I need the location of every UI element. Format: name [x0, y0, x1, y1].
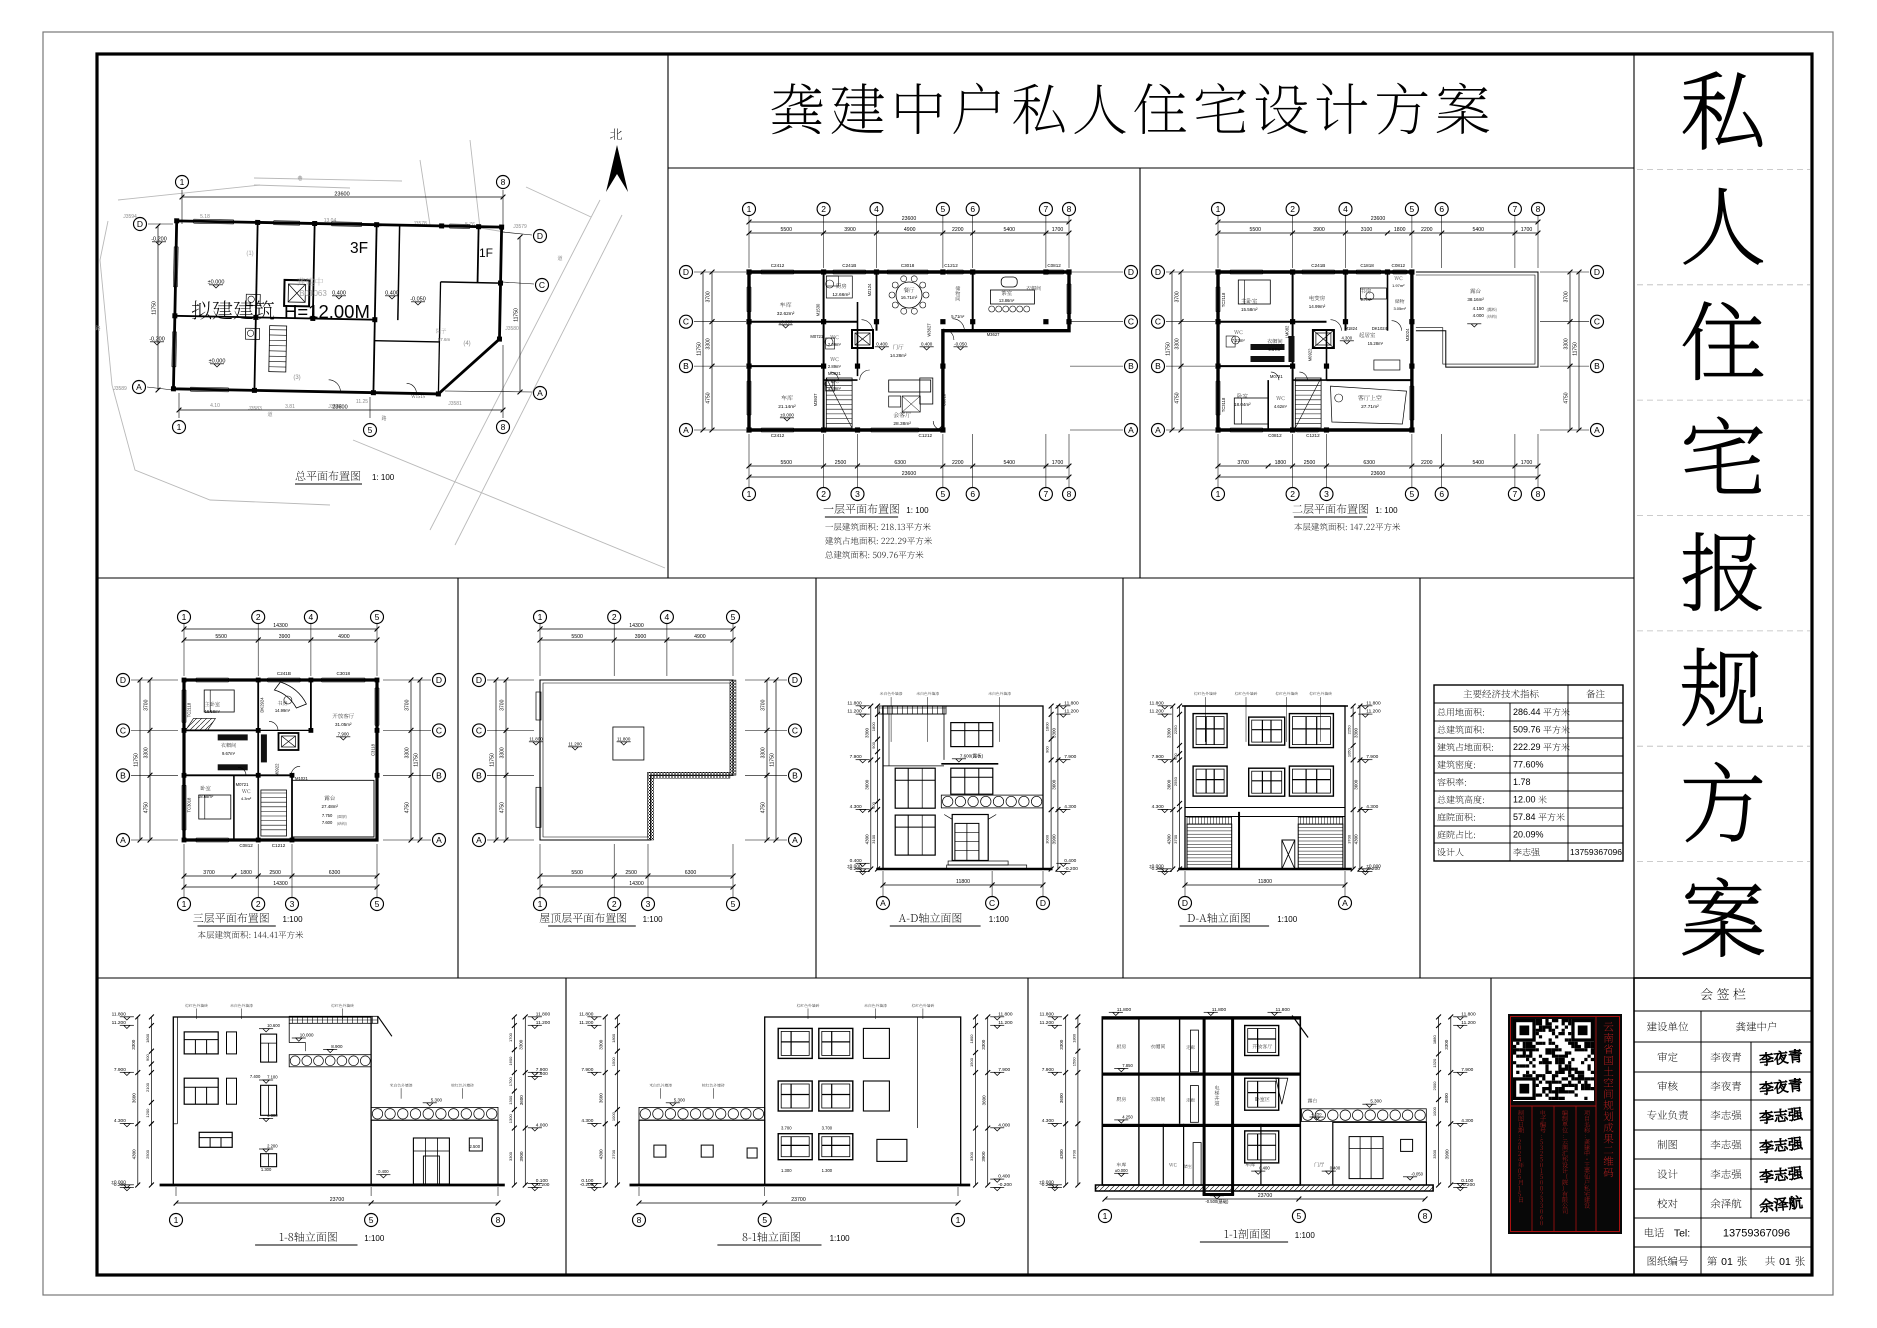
svg-text:2: 2	[821, 204, 826, 214]
svg-text:3300: 3300	[1166, 727, 1171, 738]
svg-text:4.150: 4.150	[1473, 306, 1485, 311]
svg-text:11.800: 11.800	[579, 1011, 594, 1017]
svg-text:1600: 1600	[508, 1056, 513, 1066]
svg-text:3700: 3700	[1237, 460, 1249, 466]
svg-text:1800: 1800	[1275, 460, 1287, 466]
svg-text:11.200: 11.200	[1064, 709, 1079, 715]
svg-text:5500: 5500	[571, 870, 583, 876]
svg-text:3300: 3300	[1175, 338, 1181, 349]
svg-text:C: C	[539, 280, 545, 290]
svg-text:3.05m²: 3.05m²	[1393, 306, 1406, 311]
svg-text:7.900: 7.900	[1152, 754, 1164, 760]
svg-text:7.900: 7.900	[1042, 1067, 1054, 1073]
svg-text:A: A	[1594, 425, 1600, 435]
svg-text:-0.200: -0.200	[149, 336, 165, 342]
svg-text:4300: 4300	[864, 834, 869, 845]
svg-text:6300: 6300	[329, 870, 341, 876]
svg-text:4900: 4900	[694, 634, 706, 640]
svg-text:1800: 1800	[969, 1034, 974, 1044]
svg-text:23700: 23700	[791, 1197, 806, 1203]
svg-text:10.600: 10.600	[267, 1023, 280, 1028]
svg-text:1700: 1700	[1521, 460, 1533, 466]
svg-text:6300: 6300	[1363, 460, 1375, 466]
svg-text:D: D	[476, 675, 482, 685]
svg-text:15.28m²: 15.28m²	[1368, 341, 1384, 346]
svg-text:5400: 5400	[1004, 460, 1016, 466]
svg-text:路: 路	[95, 325, 100, 332]
svg-text:M0922: M0922	[274, 763, 279, 776]
svg-text:2200: 2200	[1421, 227, 1433, 233]
svg-text:4.10: 4.10	[210, 403, 220, 409]
svg-text:7.100: 7.100	[267, 1075, 278, 1080]
svg-text:1800: 1800	[611, 1033, 616, 1043]
svg-text:5: 5	[1297, 1211, 1302, 1221]
svg-text:3900: 3900	[844, 227, 856, 233]
svg-text:5500: 5500	[781, 460, 793, 466]
svg-text:7.900: 7.900	[1461, 1067, 1473, 1073]
svg-text:2.200: 2.200	[267, 1144, 278, 1149]
svg-text:1880: 1880	[1432, 1034, 1437, 1044]
svg-text:14300: 14300	[273, 623, 288, 629]
svg-text:222.29: 222.29	[1513, 742, 1541, 752]
svg-text:3.700: 3.700	[781, 1126, 792, 1131]
svg-text:1.300: 1.300	[261, 1167, 272, 1172]
svg-text:11750: 11750	[152, 301, 158, 315]
svg-text:5: 5	[762, 1215, 767, 1225]
svg-text:5400: 5400	[1473, 460, 1485, 466]
svg-text:C3018: C3018	[337, 671, 351, 676]
svg-text:8: 8	[637, 1215, 642, 1225]
svg-text:J3589: J3589	[113, 386, 127, 392]
svg-text:C3018: C3018	[942, 393, 947, 406]
svg-text:3: 3	[290, 899, 295, 909]
svg-text:C: C	[1155, 317, 1161, 327]
svg-text:11750: 11750	[1573, 342, 1579, 356]
svg-text:3900: 3900	[981, 1151, 986, 1162]
svg-text:A: A	[683, 425, 689, 435]
svg-text:23600: 23600	[332, 405, 347, 411]
svg-text:5: 5	[941, 204, 946, 214]
svg-text:11.200: 11.200	[1366, 709, 1381, 715]
svg-text:3600: 3600	[519, 1095, 524, 1106]
svg-text:-0.200: -0.200	[1064, 866, 1078, 872]
svg-text:4.000: 4.000	[998, 1122, 1010, 1128]
svg-text:TC2118: TC2118	[187, 702, 192, 717]
svg-text:1:100: 1:100	[1295, 1231, 1316, 1240]
svg-text:14.28m²: 14.28m²	[890, 353, 907, 358]
svg-text:1.300: 1.300	[781, 1168, 792, 1173]
svg-text:11.800: 11.800	[1461, 1011, 1476, 1017]
svg-text:B: B	[792, 770, 798, 780]
svg-text:4300: 4300	[1353, 834, 1358, 845]
svg-text:5: 5	[375, 899, 380, 909]
svg-text:M2124: M2124	[867, 283, 872, 296]
svg-text:11.800: 11.800	[1149, 700, 1164, 706]
svg-text:2: 2	[612, 899, 617, 909]
svg-text:3900: 3900	[519, 1151, 524, 1162]
svg-text:1800: 1800	[1071, 1033, 1076, 1043]
svg-text:1: 1	[747, 489, 752, 499]
svg-text:3300: 3300	[1432, 1149, 1437, 1159]
svg-text:7.600: 7.600	[536, 1071, 548, 1077]
svg-text:7: 7	[1513, 204, 1518, 214]
svg-text:2100: 2100	[145, 1082, 150, 1092]
svg-text:20.09%: 20.09%	[1513, 830, 1544, 840]
svg-text:9.67m²: 9.67m²	[1268, 347, 1282, 352]
svg-text:D: D	[683, 267, 689, 277]
svg-text:3700: 3700	[1564, 291, 1570, 302]
svg-text:B: B	[1155, 361, 1161, 371]
svg-text:0.400: 0.400	[1259, 1166, 1270, 1171]
svg-text:4300: 4300	[131, 1149, 136, 1160]
svg-text:16.71m²: 16.71m²	[901, 295, 918, 300]
svg-text:4.000: 4.000	[1473, 313, 1485, 318]
svg-text:道: 道	[267, 411, 272, 418]
svg-text:7.22m²: 7.22m²	[1232, 338, 1246, 343]
svg-text:C241B: C241B	[277, 671, 291, 676]
svg-text:15.58m²: 15.58m²	[205, 709, 221, 714]
svg-text:C: C	[436, 725, 442, 735]
svg-text:3600: 3600	[1444, 1093, 1449, 1104]
svg-text:3600: 3600	[1059, 1093, 1064, 1104]
svg-text:1800: 1800	[240, 870, 252, 876]
svg-text:11.800: 11.800	[998, 1011, 1013, 1017]
svg-text:1:100: 1:100	[364, 1234, 385, 1243]
svg-text:2500: 2500	[145, 1149, 150, 1159]
svg-text:3700: 3700	[203, 870, 215, 876]
svg-text:32.62m²: 32.62m²	[777, 311, 795, 317]
svg-text:5500: 5500	[571, 634, 583, 640]
svg-text:1: 1	[174, 1215, 179, 1225]
svg-text:7.750: 7.750	[322, 813, 333, 818]
svg-text:-0.200: -0.200	[536, 1182, 550, 1188]
svg-text:5400: 5400	[1004, 227, 1016, 233]
svg-text:0.400: 0.400	[921, 341, 933, 346]
svg-text:11.800: 11.800	[1117, 1007, 1132, 1013]
svg-text:D: D	[436, 675, 442, 685]
svg-text:2500: 2500	[625, 870, 637, 876]
svg-text:1500: 1500	[969, 1057, 974, 1067]
svg-text:23600: 23600	[902, 216, 917, 222]
svg-text:C0812: C0812	[1392, 263, 1406, 268]
svg-text:0.400: 0.400	[378, 1169, 389, 1174]
svg-text:23700: 23700	[330, 1197, 345, 1203]
svg-text:11.200: 11.200	[579, 1020, 594, 1026]
svg-text:7: 7	[1513, 489, 1518, 499]
svg-text:-0.200: -0.200	[580, 1182, 594, 1188]
svg-text:4.150: 4.150	[1311, 1112, 1322, 1117]
svg-text:1: 1	[1103, 1211, 1108, 1221]
svg-text:D: D	[537, 231, 543, 241]
svg-text:4.300: 4.300	[1152, 804, 1164, 810]
svg-text:5.71m²: 5.71m²	[951, 314, 965, 319]
svg-text:0.400: 0.400	[850, 858, 862, 864]
svg-text:4900: 4900	[338, 634, 350, 640]
svg-text:1:100: 1:100	[989, 915, 1010, 924]
svg-text:C0812: C0812	[1268, 433, 1282, 438]
svg-text:2.89m²: 2.89m²	[828, 364, 842, 369]
svg-text:11.800: 11.800	[536, 1011, 551, 1017]
svg-text:TC3118: TC3118	[1221, 397, 1226, 412]
svg-text:B: B	[1128, 361, 1134, 371]
svg-text:5.300: 5.300	[674, 1097, 686, 1102]
svg-text:3300: 3300	[1059, 1039, 1064, 1050]
svg-text:7.900: 7.900	[1064, 754, 1076, 760]
svg-text:3: 3	[646, 899, 651, 909]
svg-text:5: 5	[1410, 489, 1415, 499]
svg-text:0.400: 0.400	[998, 1174, 1010, 1180]
svg-text:7.900: 7.900	[850, 754, 862, 760]
svg-text:4750: 4750	[760, 802, 766, 813]
svg-text:8: 8	[501, 422, 506, 432]
svg-text:8: 8	[496, 1215, 501, 1225]
svg-text:-0.200: -0.200	[1366, 866, 1380, 872]
svg-text:11750: 11750	[770, 753, 776, 767]
svg-text:1800: 1800	[871, 722, 876, 732]
svg-text:4: 4	[1343, 204, 1348, 214]
svg-text:3300: 3300	[706, 338, 712, 349]
svg-text:11800: 11800	[956, 879, 970, 885]
svg-text:±0.000: ±0.000	[209, 358, 226, 364]
svg-text:C1818: C1818	[1360, 263, 1374, 268]
svg-text:3300: 3300	[1564, 338, 1570, 349]
svg-text:-0.200: -0.200	[848, 866, 862, 872]
svg-text:D: D	[792, 675, 798, 685]
svg-text:路: 路	[381, 415, 386, 422]
svg-text:7.900: 7.900	[1366, 754, 1378, 760]
svg-text:5: 5	[941, 489, 946, 499]
svg-text:2: 2	[1290, 204, 1295, 214]
svg-text:13.86m²: 13.86m²	[999, 298, 1015, 303]
svg-text:3900: 3900	[279, 634, 291, 640]
svg-text:1700: 1700	[1521, 227, 1533, 233]
svg-text:±0.000: ±0.000	[780, 412, 794, 417]
svg-text:M0721: M0721	[810, 334, 823, 339]
svg-text:1.89m²: 1.89m²	[828, 386, 842, 391]
svg-text:3600: 3600	[981, 1095, 986, 1106]
svg-text:18.68m²: 18.68m²	[198, 794, 214, 799]
svg-text:4.300: 4.300	[114, 1118, 126, 1124]
svg-text:2: 2	[1290, 489, 1295, 499]
svg-text:27.48m²: 27.48m²	[322, 804, 339, 809]
svg-text:±0.000: ±0.000	[1115, 1168, 1128, 1173]
svg-text:M3024: M3024	[1405, 328, 1410, 341]
svg-text:TC2118: TC2118	[1221, 292, 1226, 307]
svg-text:A: A	[136, 382, 142, 392]
svg-text:11750: 11750	[1166, 342, 1172, 356]
svg-text:11.800: 11.800	[1366, 700, 1381, 706]
svg-text:LM082: LM082	[1285, 325, 1290, 338]
svg-text:1F: 1F	[479, 246, 493, 260]
svg-text:8: 8	[1536, 489, 1541, 499]
svg-text:5: 5	[731, 899, 736, 909]
svg-text:D: D	[1155, 267, 1161, 277]
svg-text:5500: 5500	[215, 634, 227, 640]
svg-text:M1530: M1530	[816, 303, 821, 316]
svg-text:6: 6	[1439, 489, 1444, 499]
svg-text:2500: 2500	[1304, 460, 1316, 466]
svg-text:M1021: M1021	[295, 776, 308, 781]
svg-text:5: 5	[369, 1215, 374, 1225]
svg-text:2.09m²: 2.09m²	[828, 342, 842, 347]
svg-text:3700: 3700	[500, 699, 506, 710]
svg-text:1: 1	[180, 177, 185, 187]
svg-text:C: C	[476, 725, 482, 735]
svg-text:11750: 11750	[414, 753, 420, 767]
svg-text:5500: 5500	[1250, 227, 1262, 233]
svg-text:1800: 1800	[1394, 227, 1406, 233]
svg-text:3600: 3600	[1051, 779, 1056, 790]
svg-text:D: D	[1128, 267, 1134, 277]
svg-text:C1212: C1212	[919, 433, 933, 438]
svg-text:900: 900	[1045, 745, 1050, 752]
svg-text:11.200: 11.200	[998, 1020, 1013, 1026]
svg-text:3300: 3300	[508, 1151, 513, 1161]
svg-text:4.300: 4.300	[850, 804, 862, 810]
svg-text:15.58m²: 15.58m²	[1241, 307, 1258, 312]
svg-text:A: A	[120, 835, 126, 845]
svg-text:DK1024: DK1024	[1372, 326, 1388, 331]
svg-text:10.000: 10.000	[300, 1033, 314, 1038]
svg-text:1: 100: 1: 100	[906, 506, 929, 515]
svg-text:±0.000: ±0.000	[779, 319, 793, 324]
svg-text:道: 道	[557, 255, 562, 262]
svg-text:3.81: 3.81	[285, 404, 295, 410]
svg-text:4900: 4900	[904, 227, 916, 233]
svg-text:11.800: 11.800	[112, 1011, 127, 1017]
svg-text:J3580: J3580	[505, 326, 519, 332]
svg-text:D: D	[1040, 898, 1046, 908]
svg-text:2200: 2200	[1421, 460, 1433, 466]
svg-text:3100: 3100	[1361, 227, 1373, 233]
svg-text:1:100: 1:100	[830, 1234, 851, 1243]
svg-text:1: 1	[1216, 204, 1221, 214]
svg-text:3300: 3300	[760, 747, 766, 758]
svg-text:6300: 6300	[685, 870, 697, 876]
svg-text:5500: 5500	[781, 227, 793, 233]
svg-text:11.200: 11.200	[536, 1020, 551, 1026]
svg-text:3300: 3300	[1353, 727, 1358, 738]
svg-text:1: 1	[182, 612, 187, 622]
svg-text:巷: 巷	[297, 176, 302, 182]
svg-text:13759367096: 13759367096	[1570, 847, 1622, 857]
svg-text:0.400: 0.400	[1330, 1166, 1341, 1171]
svg-text:900: 900	[145, 1053, 150, 1060]
svg-text:C: C	[1128, 317, 1134, 327]
svg-text:D: D	[137, 219, 143, 229]
svg-text:23600: 23600	[902, 471, 917, 477]
svg-text:C241B: C241B	[1311, 263, 1325, 268]
svg-text:600: 600	[871, 801, 876, 808]
svg-text:509.76: 509.76	[1513, 725, 1541, 735]
svg-text:A: A	[476, 835, 482, 845]
svg-text:4750: 4750	[1564, 392, 1570, 403]
svg-text:3700: 3700	[706, 291, 712, 302]
svg-text:1300: 1300	[508, 1095, 513, 1105]
svg-text:1.78: 1.78	[1513, 777, 1531, 787]
svg-text:6: 6	[970, 489, 975, 499]
svg-text:3300: 3300	[864, 727, 869, 738]
svg-text:1000: 1000	[611, 1111, 616, 1121]
svg-text:C0812: C0812	[239, 843, 253, 848]
svg-text:3300: 3300	[969, 1151, 974, 1161]
svg-text:1:100: 1:100	[1277, 915, 1298, 924]
svg-text:3000: 3000	[1045, 834, 1050, 844]
svg-text:21.14m²: 21.14m²	[778, 404, 796, 410]
svg-text:3300: 3300	[143, 747, 149, 758]
svg-text:A: A	[792, 835, 798, 845]
svg-text:5: 5	[368, 425, 373, 435]
svg-text:1.97m²: 1.97m²	[1392, 283, 1405, 288]
svg-text:M0821: M0821	[828, 371, 841, 376]
svg-text:31.05m²: 31.05m²	[335, 722, 352, 727]
svg-text:3: 3	[1324, 489, 1329, 499]
svg-text:3700: 3700	[144, 699, 150, 710]
svg-text:3900: 3900	[1444, 1149, 1449, 1160]
svg-text:A: A	[537, 388, 543, 398]
svg-text:2: 2	[256, 612, 261, 622]
svg-text:1700: 1700	[1052, 460, 1064, 466]
svg-text:-0.200: -0.200	[151, 236, 167, 242]
svg-text:3100: 3100	[871, 834, 876, 844]
svg-text:0.400: 0.400	[1064, 858, 1076, 864]
svg-text:7.400: 7.400	[250, 1074, 261, 1079]
svg-text:4: 4	[874, 204, 879, 214]
svg-text:8: 8	[1067, 489, 1072, 499]
svg-text:2500: 2500	[269, 870, 281, 876]
svg-text:6: 6	[970, 204, 975, 214]
svg-text:3300: 3300	[404, 747, 410, 758]
svg-text:0.400: 0.400	[876, 341, 888, 346]
svg-text:600: 600	[1173, 753, 1178, 760]
svg-text:8: 8	[1067, 204, 1072, 214]
svg-text:9.7m²: 9.7m²	[1360, 297, 1371, 302]
svg-text:11.800: 11.800	[617, 736, 631, 741]
svg-text:2: 2	[612, 612, 617, 622]
svg-text:3600: 3600	[1353, 779, 1358, 790]
svg-text:M3627: M3627	[987, 332, 1000, 337]
svg-text:3700: 3700	[1175, 291, 1181, 302]
svg-text:2500: 2500	[835, 460, 847, 466]
svg-text:3600: 3600	[131, 1093, 136, 1104]
svg-text:3900: 3900	[1051, 834, 1056, 845]
svg-text:M0721: M0721	[1270, 374, 1283, 379]
svg-text:-0.200: -0.200	[1040, 1182, 1054, 1188]
svg-text:C2412: C2412	[771, 263, 785, 268]
svg-text:8: 8	[1423, 1211, 1428, 1221]
svg-text:23600: 23600	[1371, 471, 1386, 477]
svg-text:11750: 11750	[490, 753, 496, 767]
svg-text:286.44: 286.44	[1513, 707, 1541, 717]
svg-text:2200: 2200	[952, 227, 964, 233]
svg-text:B: B	[476, 770, 482, 780]
svg-text:-0.200: -0.200	[112, 1182, 126, 1188]
svg-text:11800: 11800	[1258, 879, 1272, 885]
svg-text:4.000: 4.000	[536, 1122, 548, 1128]
svg-text:4300: 4300	[599, 1149, 604, 1160]
svg-text:D: D	[1182, 898, 1188, 908]
svg-text:1320: 1320	[1432, 1058, 1437, 1068]
svg-text:C241B: C241B	[842, 263, 856, 268]
svg-text:4750: 4750	[143, 802, 149, 813]
svg-text:6: 6	[1439, 204, 1444, 214]
svg-text:J3581: J3581	[448, 401, 462, 407]
svg-text:11.25: 11.25	[356, 399, 368, 405]
svg-text:3300: 3300	[131, 1039, 136, 1050]
svg-text:1800: 1800	[1045, 722, 1050, 732]
svg-text:J3583: J3583	[248, 406, 262, 412]
svg-text:3700: 3700	[1173, 834, 1178, 844]
